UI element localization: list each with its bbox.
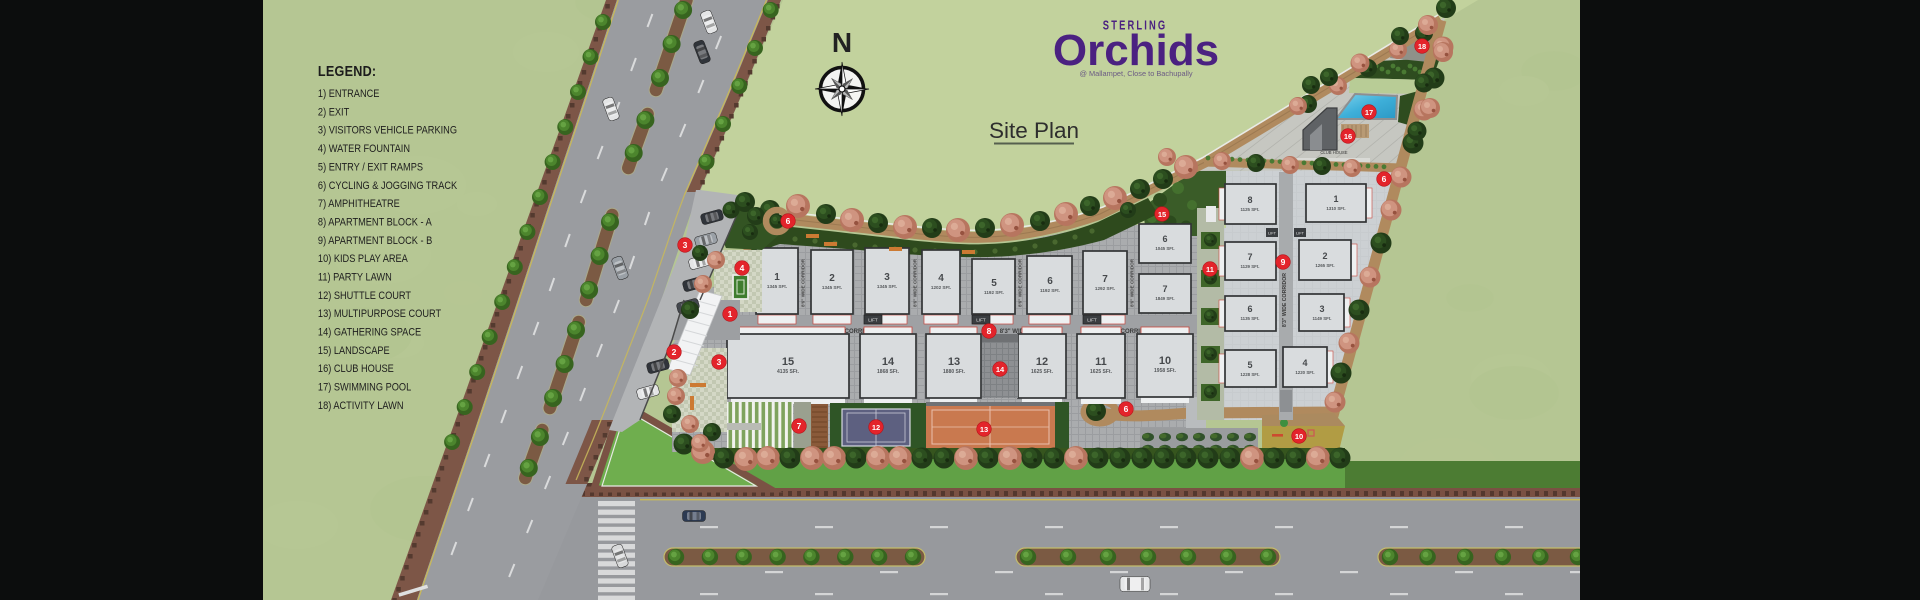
svg-text:3: 3 (683, 240, 688, 250)
svg-text:4135 SFt.: 4135 SFt. (777, 369, 800, 375)
svg-text:11: 11 (1095, 356, 1107, 368)
svg-text:18) ACTIVITY LAWN: 18) ACTIVITY LAWN (318, 400, 404, 412)
svg-text:8: 8 (1247, 195, 1252, 205)
svg-text:14: 14 (882, 356, 895, 368)
svg-text:6) CYCLING & JOGGING TRACK: 6) CYCLING & JOGGING TRACK (318, 180, 457, 192)
svg-text:3: 3 (717, 357, 722, 367)
svg-text:1: 1 (774, 272, 780, 283)
svg-text:14: 14 (996, 365, 1005, 374)
svg-text:1: 1 (1333, 194, 1338, 204)
svg-text:16: 16 (1344, 132, 1352, 141)
svg-text:7: 7 (1247, 252, 1252, 262)
svg-text:LEGEND:: LEGEND: (318, 62, 376, 79)
svg-text:1220 SFt.: 1220 SFt. (1295, 370, 1314, 375)
svg-text:10: 10 (1159, 355, 1171, 367)
svg-text:5) ENTRY / EXIT RAMPS: 5) ENTRY / EXIT RAMPS (318, 162, 423, 174)
svg-text:13: 13 (948, 356, 960, 368)
svg-text:1: 1 (728, 309, 733, 319)
svg-text:2: 2 (672, 347, 677, 357)
svg-text:1958 SFt.: 1958 SFt. (1154, 368, 1177, 374)
svg-text:8'6" WIDE CORRIDOR: 8'6" WIDE CORRIDOR (1018, 258, 1023, 307)
svg-text:3: 3 (1319, 304, 1324, 314)
svg-text:8) APARTMENT BLOCK - A: 8) APARTMENT BLOCK - A (318, 217, 432, 229)
svg-text:5: 5 (991, 278, 997, 289)
svg-text:6: 6 (1047, 276, 1053, 287)
svg-text:1849 SFt.: 1849 SFt. (1155, 296, 1174, 301)
svg-text:8: 8 (987, 326, 992, 336)
svg-text:1125 SFt.: 1125 SFt. (1240, 207, 1259, 212)
svg-text:9: 9 (1281, 257, 1286, 267)
svg-text:15) LANDSCAPE: 15) LANDSCAPE (318, 345, 390, 357)
svg-text:7) AMPHITHEATRE: 7) AMPHITHEATRE (318, 198, 400, 210)
svg-text:1192 SFt.: 1192 SFt. (984, 290, 1004, 295)
svg-text:8'6" WIDE CORRIDOR: 8'6" WIDE CORRIDOR (801, 258, 806, 307)
svg-text:1228 SFt.: 1228 SFt. (1240, 372, 1259, 377)
svg-text:1149 SFt.: 1149 SFt. (1312, 316, 1331, 321)
svg-text:5: 5 (1247, 360, 1252, 370)
svg-text:LIFT: LIFT (976, 318, 986, 323)
svg-text:15: 15 (782, 356, 794, 368)
svg-text:17) SWIMMING POOL: 17) SWIMMING POOL (318, 382, 412, 394)
svg-text:7: 7 (797, 421, 802, 431)
svg-text:4: 4 (740, 263, 745, 273)
svg-text:1129 SFt.: 1129 SFt. (1240, 264, 1259, 269)
svg-text:8'6" WIDE CORRIDOR: 8'6" WIDE CORRIDOR (913, 258, 918, 307)
svg-text:Orchids: Orchids (1053, 26, 1219, 75)
svg-text:2: 2 (829, 273, 835, 284)
svg-text:12: 12 (1036, 356, 1048, 368)
svg-text:8'3" WIDE CORRIDOR: 8'3" WIDE CORRIDOR (1282, 273, 1288, 327)
svg-text:14) GATHERING SPACE: 14) GATHERING SPACE (318, 327, 421, 339)
svg-text:6: 6 (1162, 234, 1167, 244)
svg-text:2) EXIT: 2) EXIT (318, 107, 349, 119)
svg-text:10: 10 (1295, 432, 1303, 441)
svg-text:LIFT: LIFT (1268, 232, 1276, 236)
svg-text:9) APARTMENT BLOCK - B: 9) APARTMENT BLOCK - B (318, 235, 433, 247)
svg-text:13: 13 (980, 425, 988, 434)
svg-text:1265 SFt.: 1265 SFt. (1315, 263, 1334, 268)
svg-text:10) KIDS PLAY AREA: 10) KIDS PLAY AREA (318, 253, 408, 265)
svg-text:12: 12 (872, 423, 880, 432)
svg-text:7: 7 (1102, 274, 1108, 285)
svg-text:1135 SFt.: 1135 SFt. (1240, 316, 1259, 321)
svg-text:17: 17 (1365, 108, 1373, 117)
svg-text:6: 6 (1124, 404, 1129, 414)
svg-text:1625 SFt.: 1625 SFt. (1090, 369, 1113, 375)
svg-text:15: 15 (1158, 210, 1166, 219)
svg-text:LIFT: LIFT (1087, 318, 1097, 323)
svg-text:11: 11 (1206, 265, 1214, 274)
svg-text:12) SHUTTLE COURT: 12) SHUTTLE COURT (318, 290, 411, 302)
svg-text:6: 6 (1382, 174, 1387, 184)
svg-text:16) CLUB HOUSE: 16) CLUB HOUSE (318, 364, 394, 376)
svg-text:1345 SFt.: 1345 SFt. (877, 284, 897, 289)
svg-text:1310 SFt.: 1310 SFt. (1326, 206, 1345, 211)
svg-text:6: 6 (786, 216, 791, 226)
svg-text:18: 18 (1418, 42, 1426, 51)
svg-text:1) ENTRANCE: 1) ENTRANCE (318, 88, 380, 100)
svg-text:LIFT: LIFT (868, 318, 878, 323)
svg-text:3) VISITORS VEHICLE PARKING: 3) VISITORS VEHICLE PARKING (318, 125, 457, 137)
svg-text:1345 SFt.: 1345 SFt. (822, 285, 842, 290)
svg-text:4: 4 (938, 273, 944, 284)
svg-text:1292 SFt.: 1292 SFt. (1095, 286, 1115, 291)
svg-text:@ Mallampet, Close to Bachupal: @ Mallampet, Close to Bachupally (1079, 69, 1192, 78)
svg-text:CLUB HOUSE: CLUB HOUSE (1320, 150, 1347, 155)
svg-text:1202 SFt.: 1202 SFt. (931, 285, 951, 290)
svg-text:Site Plan: Site Plan (989, 118, 1079, 143)
svg-text:2: 2 (1322, 251, 1327, 261)
svg-text:4) WATER FOUNTAIN: 4) WATER FOUNTAIN (318, 143, 410, 155)
svg-text:1345 SFt.: 1345 SFt. (767, 284, 787, 289)
svg-text:1192 SFt.: 1192 SFt. (1040, 288, 1060, 293)
svg-text:8'6" WIDE CORRIDOR: 8'6" WIDE CORRIDOR (1130, 258, 1135, 307)
svg-text:LIFT: LIFT (1296, 232, 1304, 236)
svg-text:7: 7 (1162, 284, 1167, 294)
svg-text:N: N (832, 27, 852, 58)
svg-text:4: 4 (1302, 358, 1307, 368)
svg-text:6: 6 (1247, 304, 1252, 314)
svg-text:13) MULTIPURPOSE COURT: 13) MULTIPURPOSE COURT (318, 309, 441, 321)
svg-text:3: 3 (884, 272, 890, 283)
svg-text:1045 SFt.: 1045 SFt. (1155, 246, 1174, 251)
svg-text:11) PARTY LAWN: 11) PARTY LAWN (318, 272, 392, 284)
svg-text:1625 SFt.: 1625 SFt. (1031, 369, 1054, 375)
svg-text:1880 SFt.: 1880 SFt. (943, 369, 966, 375)
svg-text:1868 SFt.: 1868 SFt. (877, 369, 900, 375)
